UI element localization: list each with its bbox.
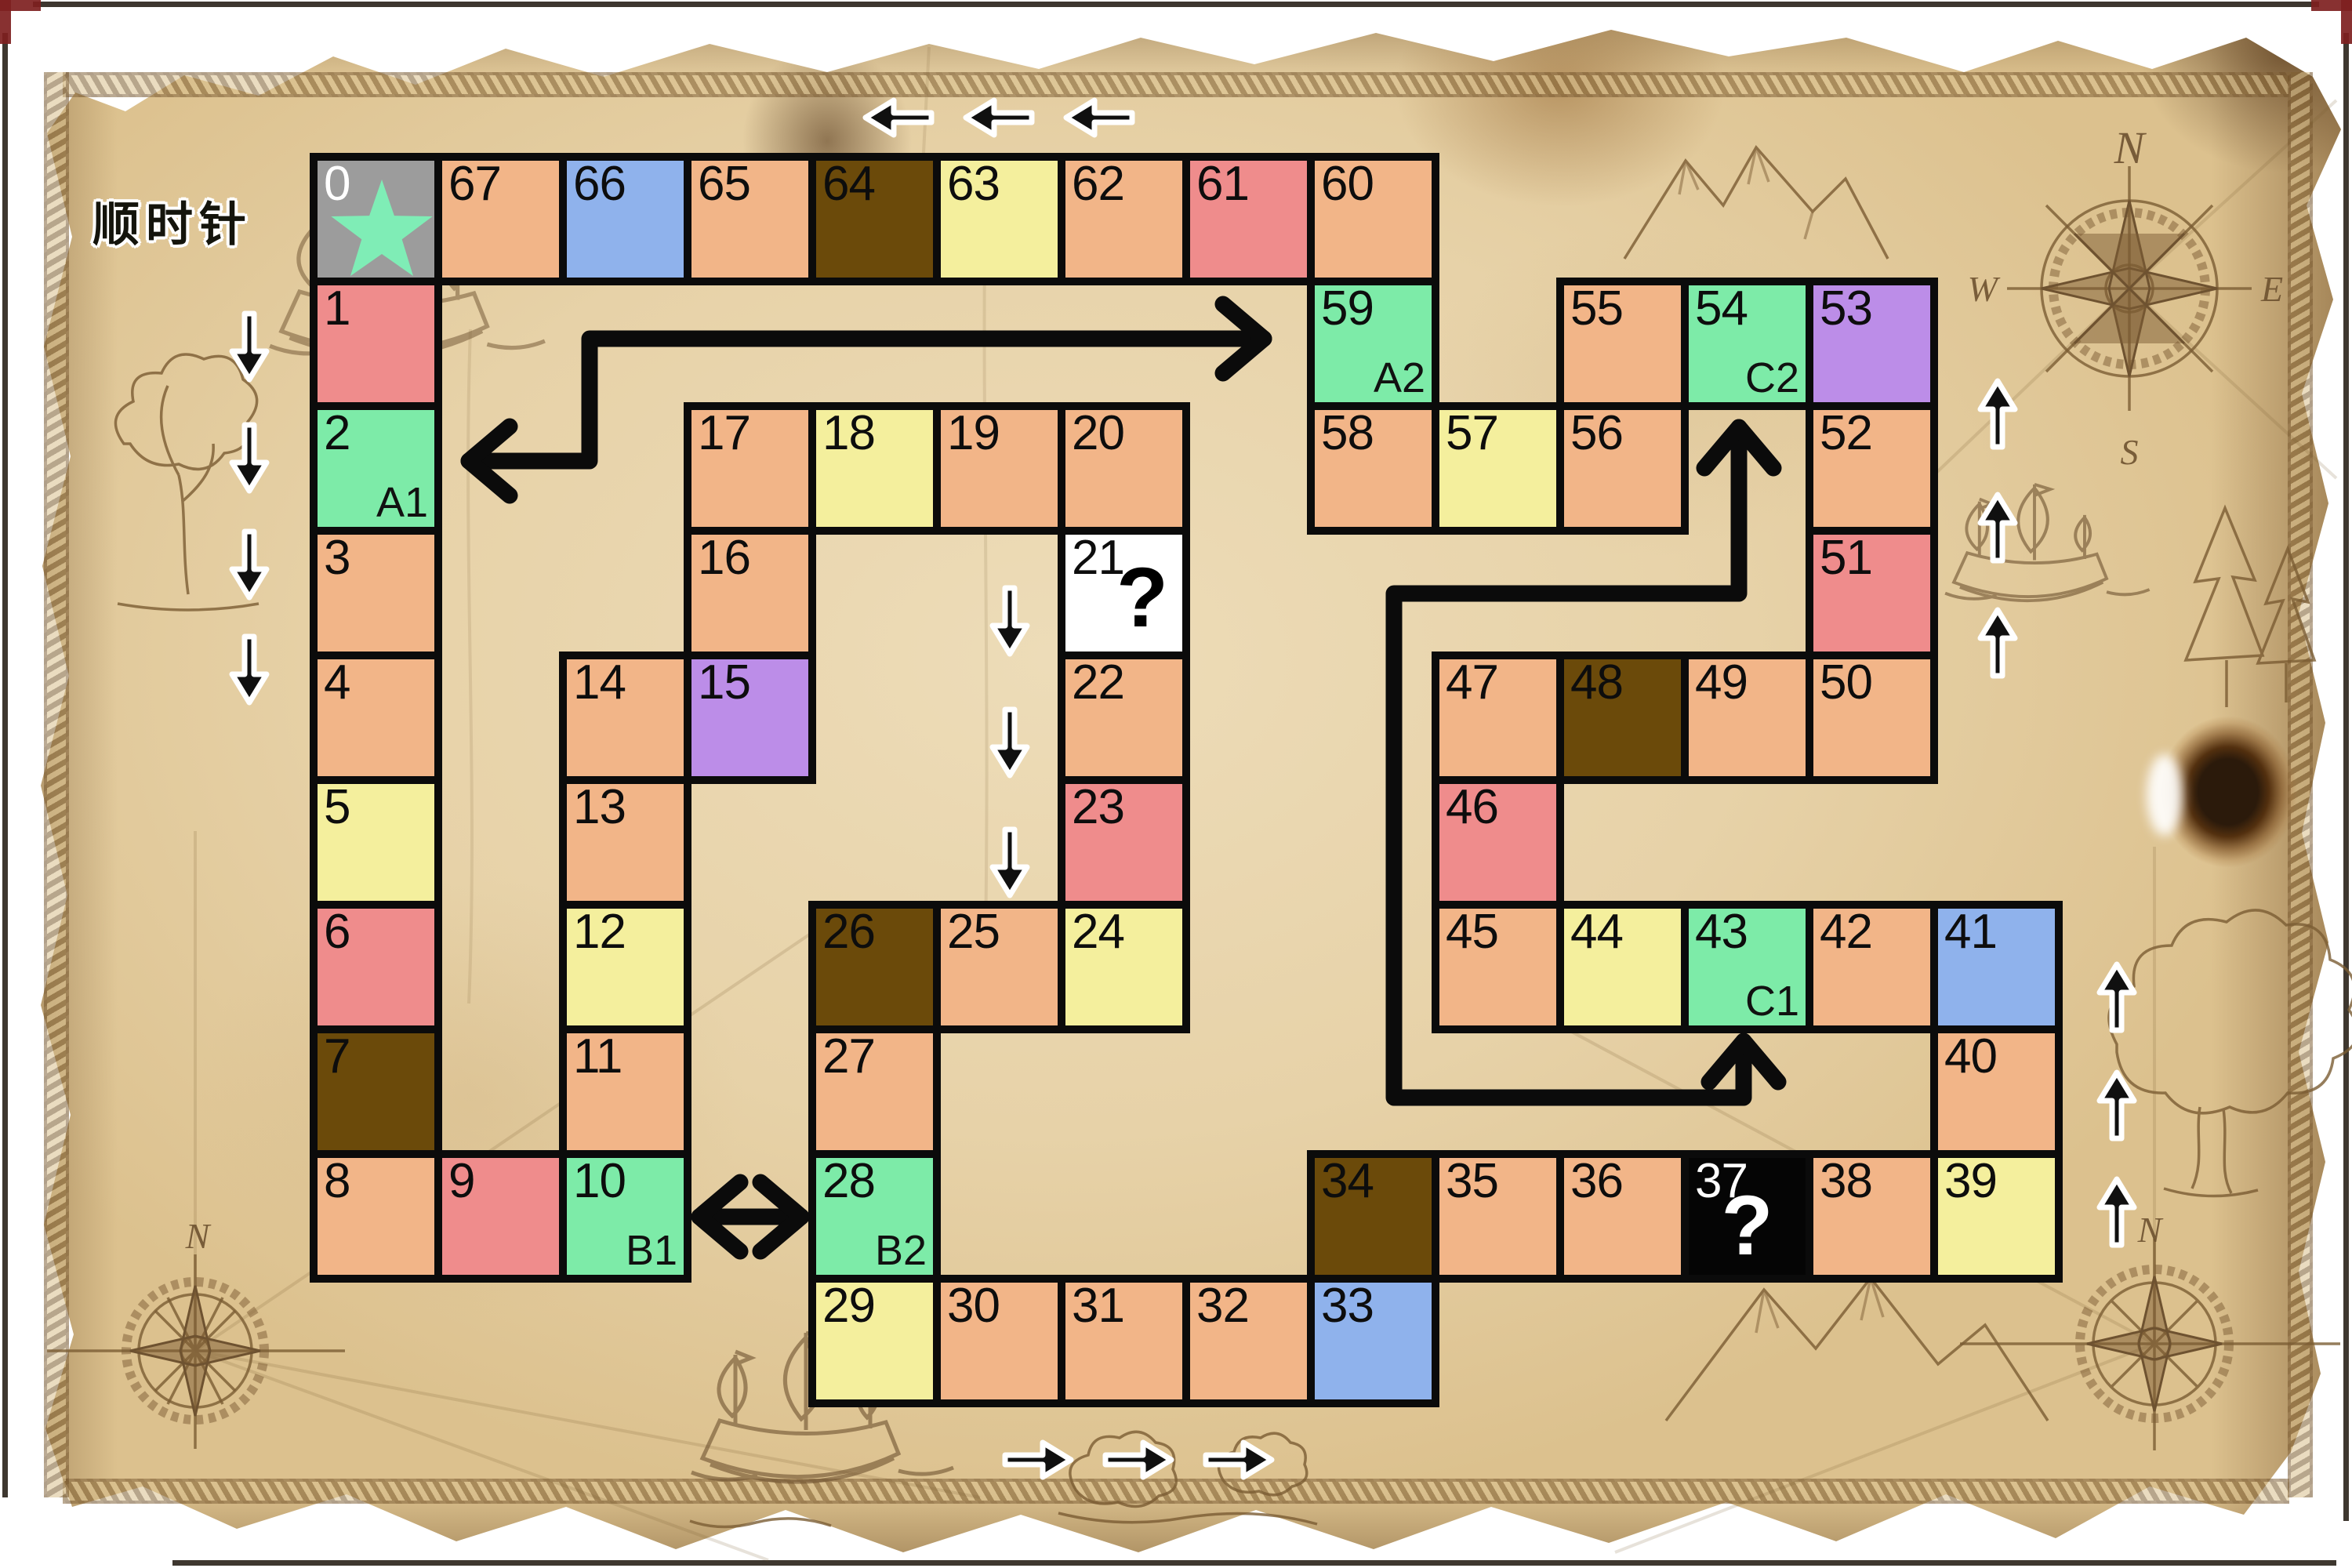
cell-number: 44 xyxy=(1570,904,1623,960)
cell-number: 33 xyxy=(1321,1278,1374,1334)
cell-label-B2: B2 xyxy=(875,1226,927,1275)
cell-21[interactable]: 21? xyxy=(1058,527,1190,659)
cell-35[interactable]: 35 xyxy=(1432,1150,1564,1283)
cell-3[interactable]: 3 xyxy=(310,527,442,659)
cell-number: 8 xyxy=(324,1153,350,1209)
cell-30[interactable]: 30 xyxy=(933,1275,1065,1407)
cell-40[interactable]: 40 xyxy=(1930,1025,2063,1158)
cell-number: 16 xyxy=(698,530,750,586)
cell-number: 45 xyxy=(1446,904,1498,960)
cell-47[interactable]: 47 xyxy=(1432,652,1564,784)
cell-14[interactable]: 14 xyxy=(559,652,691,784)
cell-42[interactable]: 42 xyxy=(1806,901,1938,1033)
cell-43[interactable]: 43C1 xyxy=(1681,901,1813,1033)
cell-11[interactable]: 11 xyxy=(559,1025,691,1158)
cell-number: 63 xyxy=(947,156,1000,212)
cell-16[interactable]: 16 xyxy=(684,527,816,659)
cell-61[interactable]: 61 xyxy=(1182,153,1315,285)
cell-37[interactable]: 37? xyxy=(1681,1150,1813,1283)
cell-0[interactable]: 0 xyxy=(310,153,442,285)
cell-41[interactable]: 41 xyxy=(1930,901,2063,1033)
cell-27[interactable]: 27 xyxy=(808,1025,941,1158)
cell-number: 66 xyxy=(573,156,626,212)
cell-number: 30 xyxy=(947,1278,1000,1334)
cell-44[interactable]: 44 xyxy=(1556,901,1689,1033)
cell-2[interactable]: 2A1 xyxy=(310,402,442,535)
cell-6[interactable]: 6 xyxy=(310,901,442,1033)
cell-number: 61 xyxy=(1196,156,1249,212)
cell-label-A1: A1 xyxy=(376,478,428,527)
cell-45[interactable]: 45 xyxy=(1432,901,1564,1033)
cell-number: 46 xyxy=(1446,779,1498,835)
cell-67[interactable]: 67 xyxy=(434,153,567,285)
cell-53[interactable]: 53 xyxy=(1806,278,1938,410)
cell-7[interactable]: 7 xyxy=(310,1025,442,1158)
cell-48[interactable]: 48 xyxy=(1556,652,1689,784)
cell-number: 40 xyxy=(1944,1029,1997,1084)
cell-label-B1: B1 xyxy=(626,1226,677,1275)
frame-corner-ornament-top-left-2 xyxy=(0,0,11,44)
cell-59[interactable]: 59A2 xyxy=(1307,278,1439,410)
cell-number: 42 xyxy=(1820,904,1872,960)
cell-number: 53 xyxy=(1820,281,1872,336)
cell-number: 60 xyxy=(1321,156,1374,212)
cell-39[interactable]: 39 xyxy=(1930,1150,2063,1283)
cell-63[interactable]: 63 xyxy=(933,153,1065,285)
cell-34[interactable]: 34 xyxy=(1307,1150,1439,1283)
cell-number: 54 xyxy=(1695,281,1748,336)
cell-28[interactable]: 28B2 xyxy=(808,1150,941,1283)
cell-8[interactable]: 8 xyxy=(310,1150,442,1283)
cell-number: 2 xyxy=(324,405,350,461)
cell-19[interactable]: 19 xyxy=(933,402,1065,535)
cell-65[interactable]: 65 xyxy=(684,153,816,285)
cell-number: 59 xyxy=(1321,281,1374,336)
cell-58[interactable]: 58 xyxy=(1307,402,1439,535)
cell-49[interactable]: 49 xyxy=(1681,652,1813,784)
treasure-map-board: N E W S N N xyxy=(0,0,2352,1568)
cell-4[interactable]: 4 xyxy=(310,652,442,784)
cell-23[interactable]: 23 xyxy=(1058,776,1190,909)
frame-corner-ornament-top-right-2 xyxy=(2341,0,2352,44)
cell-number: 15 xyxy=(698,655,750,710)
cell-number: 55 xyxy=(1570,281,1623,336)
cell-26[interactable]: 26 xyxy=(808,901,941,1033)
cell-number: 38 xyxy=(1820,1153,1872,1209)
cell-12[interactable]: 12 xyxy=(559,901,691,1033)
cell-number: 9 xyxy=(448,1153,474,1209)
cell-64[interactable]: 64 xyxy=(808,153,941,285)
cell-17[interactable]: 17 xyxy=(684,402,816,535)
cell-number: 27 xyxy=(822,1029,875,1084)
cell-25[interactable]: 25 xyxy=(933,901,1065,1033)
cell-number: 13 xyxy=(573,779,626,835)
cell-number: 29 xyxy=(822,1278,875,1334)
cell-number: 43 xyxy=(1695,904,1748,960)
cell-32[interactable]: 32 xyxy=(1182,1275,1315,1407)
board-track: 012A1345678910B11112131415161718192021?2… xyxy=(0,0,2352,1568)
cell-number: 24 xyxy=(1072,904,1124,960)
cell-number: 17 xyxy=(698,405,750,461)
cell-number: 64 xyxy=(822,156,875,212)
cell-56[interactable]: 56 xyxy=(1556,402,1689,535)
cell-number: 58 xyxy=(1321,405,1374,461)
cell-15[interactable]: 15 xyxy=(684,652,816,784)
cell-number: 12 xyxy=(573,904,626,960)
cell-number: 0 xyxy=(324,156,350,212)
cell-29[interactable]: 29 xyxy=(808,1275,941,1407)
cell-number: 28 xyxy=(822,1153,875,1209)
cell-number: 5 xyxy=(324,779,350,835)
question-mark: ? xyxy=(1722,1183,1773,1268)
cell-20[interactable]: 20 xyxy=(1058,402,1190,535)
cell-number: 25 xyxy=(947,904,1000,960)
cell-number: 35 xyxy=(1446,1153,1498,1209)
cell-number: 41 xyxy=(1944,904,1997,960)
cell-51[interactable]: 51 xyxy=(1806,527,1938,659)
cell-number: 52 xyxy=(1820,405,1872,461)
cell-24[interactable]: 24 xyxy=(1058,901,1190,1033)
cell-label-A2: A2 xyxy=(1374,354,1425,402)
cell-number: 56 xyxy=(1570,405,1623,461)
cell-60[interactable]: 60 xyxy=(1307,153,1439,285)
cell-52[interactable]: 52 xyxy=(1806,402,1938,535)
cell-10[interactable]: 10B1 xyxy=(559,1150,691,1283)
cell-number: 51 xyxy=(1820,530,1872,586)
cell-number: 34 xyxy=(1321,1153,1374,1209)
cell-36[interactable]: 36 xyxy=(1556,1150,1689,1283)
question-mark: ? xyxy=(1116,555,1168,640)
cell-number: 26 xyxy=(822,904,875,960)
clockwise-direction-label: 顺时针 xyxy=(93,187,252,255)
cell-66[interactable]: 66 xyxy=(559,153,691,285)
cell-31[interactable]: 31 xyxy=(1058,1275,1190,1407)
cell-33[interactable]: 33 xyxy=(1307,1275,1439,1407)
cell-number: 39 xyxy=(1944,1153,1997,1209)
cell-number: 47 xyxy=(1446,655,1498,710)
cell-number: 49 xyxy=(1695,655,1748,710)
cell-number: 32 xyxy=(1196,1278,1249,1334)
cell-number: 50 xyxy=(1820,655,1872,710)
cell-55[interactable]: 55 xyxy=(1556,278,1689,410)
cell-number: 23 xyxy=(1072,779,1124,835)
cell-number: 19 xyxy=(947,405,1000,461)
cell-57[interactable]: 57 xyxy=(1432,402,1564,535)
cell-number: 1 xyxy=(324,281,350,336)
cell-label-C2: C2 xyxy=(1745,354,1799,402)
cell-62[interactable]: 62 xyxy=(1058,153,1190,285)
cell-22[interactable]: 22 xyxy=(1058,652,1190,784)
cell-number: 4 xyxy=(324,655,350,710)
cell-number: 11 xyxy=(573,1029,622,1084)
cell-number: 48 xyxy=(1570,655,1623,710)
cell-number: 7 xyxy=(324,1029,350,1084)
cell-5[interactable]: 5 xyxy=(310,776,442,909)
cell-50[interactable]: 50 xyxy=(1806,652,1938,784)
cell-46[interactable]: 46 xyxy=(1432,776,1564,909)
cell-number: 3 xyxy=(324,530,350,586)
cell-1[interactable]: 1 xyxy=(310,278,442,410)
cell-number: 22 xyxy=(1072,655,1124,710)
cell-number: 10 xyxy=(573,1153,626,1209)
cell-number: 6 xyxy=(324,904,350,960)
cell-number: 62 xyxy=(1072,156,1124,212)
cell-number: 18 xyxy=(822,405,875,461)
cell-number: 67 xyxy=(448,156,501,212)
cell-54[interactable]: 54C2 xyxy=(1681,278,1813,410)
cell-18[interactable]: 18 xyxy=(808,402,941,535)
cell-number: 31 xyxy=(1072,1278,1124,1334)
cell-number: 36 xyxy=(1570,1153,1623,1209)
cell-label-C1: C1 xyxy=(1745,977,1799,1025)
cell-9[interactable]: 9 xyxy=(434,1150,567,1283)
cell-number: 57 xyxy=(1446,405,1498,461)
cell-number: 14 xyxy=(573,655,626,710)
cell-number: 20 xyxy=(1072,405,1124,461)
cell-13[interactable]: 13 xyxy=(559,776,691,909)
cell-number: 65 xyxy=(698,156,750,212)
cell-38[interactable]: 38 xyxy=(1806,1150,1938,1283)
